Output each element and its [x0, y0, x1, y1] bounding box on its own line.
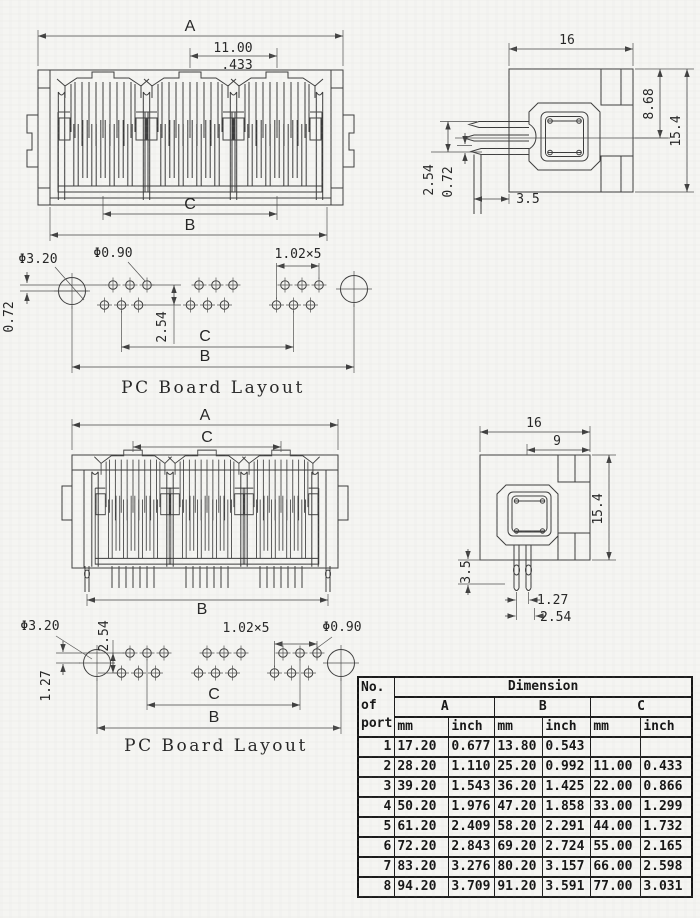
table-row: 6 72.20 2.843 69.20 2.724 55.00 2.165 [358, 837, 692, 857]
dim-label-154-2: 15.4 [591, 493, 606, 524]
cell-c-mm: 77.00 [591, 877, 641, 897]
port-count: 3 [358, 777, 395, 797]
dim-label-127-s2: 1.27 [537, 593, 568, 608]
table-row: 1 17.20 0.677 13.80 0.543 [358, 737, 692, 757]
dim-label-254-pcb1: 2.54 [155, 311, 170, 342]
dim-label-254-s1: 2.54 [422, 164, 437, 195]
cell-c-mm: 22.00 [591, 777, 641, 797]
dim-label-072-pcb1: 0.72 [2, 301, 17, 332]
dim-label-a1: A [185, 18, 196, 35]
dim-label-c2: C [201, 429, 213, 446]
cell-c-inch: 2.165 [641, 837, 692, 857]
cell-c-inch [641, 737, 692, 757]
table-row: 3 39.20 1.543 36.20 1.425 22.00 0.866 [358, 777, 692, 797]
no-line-2: of [361, 697, 392, 715]
dim-label-433in: .433 [221, 58, 252, 73]
cell-c-inch: 0.433 [641, 757, 692, 777]
dimension-table: No. of port Dimension A B C mm inch mm i… [357, 676, 693, 898]
table-header-col-a: A [395, 697, 495, 717]
cell-c-mm: 33.00 [591, 797, 641, 817]
dim-label-c1: C [184, 196, 196, 213]
cell-b-inch: 1.425 [543, 777, 591, 797]
cell-a-mm: 94.20 [395, 877, 449, 897]
cell-a-mm: 83.20 [395, 857, 449, 877]
dim-label-c-pcb1: C [199, 328, 211, 345]
cell-b-inch: 0.543 [543, 737, 591, 757]
cell-b-mm: 13.80 [495, 737, 543, 757]
cell-c-inch: 1.299 [641, 797, 692, 817]
cell-c-inch: 3.031 [641, 877, 692, 897]
table-row: 7 83.20 3.276 80.20 3.157 66.00 2.598 [358, 857, 692, 877]
unit-a-mm: mm [395, 717, 449, 737]
table-header-dimension: Dimension [395, 677, 692, 697]
dim-label-phi090-1: Φ0.90 [93, 246, 132, 261]
dim-label-254-s2: 2.54 [540, 610, 571, 625]
dim-label-35-1: 3.5 [516, 192, 539, 207]
cell-c-mm: 44.00 [591, 817, 641, 837]
cell-c-inch: 2.598 [641, 857, 692, 877]
cell-a-mm: 17.20 [395, 737, 449, 757]
side-view-1: 16 8.68 15.4 2.54 0.72 3.5 [422, 33, 694, 214]
pcb-layout-2-caption: PC Board Layout [124, 736, 308, 756]
dim-label-b1: B [185, 217, 196, 234]
port-count: 5 [358, 817, 395, 837]
cell-a-mm: 50.20 [395, 797, 449, 817]
no-line-3: port [361, 715, 392, 733]
dim-label-35-2: 3.5 [459, 560, 474, 583]
cell-b-inch: 0.992 [543, 757, 591, 777]
port-count: 1 [358, 737, 395, 757]
port-count: 2 [358, 757, 395, 777]
cell-b-inch: 2.291 [543, 817, 591, 837]
dim-label-b-pcb2: B [209, 709, 220, 726]
dim-label-phi320-1: Φ3.20 [18, 252, 57, 267]
dim-label-b2: B [197, 601, 208, 618]
pcb-layout-1-caption: PC Board Layout [121, 378, 305, 398]
cell-b-inch: 1.858 [543, 797, 591, 817]
dim-label-16-2: 16 [526, 416, 542, 431]
cell-a-inch: 1.976 [449, 797, 495, 817]
dim-label-154-1: 15.4 [669, 115, 684, 146]
cell-a-inch: 3.709 [449, 877, 495, 897]
cell-a-inch: 0.677 [449, 737, 495, 757]
table-row: 8 94.20 3.709 91.20 3.591 77.00 3.031 [358, 877, 692, 897]
unit-b-inch: inch [543, 717, 591, 737]
unit-c-inch: inch [641, 717, 692, 737]
cell-c-mm: 66.00 [591, 857, 641, 877]
dim-label-a2: A [200, 407, 211, 424]
dim-label-072-s1: 0.72 [441, 166, 456, 197]
table-header-col-b: B [495, 697, 591, 717]
cell-b-mm: 47.20 [495, 797, 543, 817]
cell-a-mm: 72.20 [395, 837, 449, 857]
cell-c-inch: 0.866 [641, 777, 692, 797]
table-row: 4 50.20 1.976 47.20 1.858 33.00 1.299 [358, 797, 692, 817]
table-header-no-of-port: No. of port [358, 677, 395, 737]
dim-label-16-1: 16 [559, 33, 575, 48]
cell-b-mm: 69.20 [495, 837, 543, 857]
table-row: 5 61.20 2.409 58.20 2.291 44.00 1.732 [358, 817, 692, 837]
port-count: 7 [358, 857, 395, 877]
cell-a-mm: 39.20 [395, 777, 449, 797]
cell-a-mm: 28.20 [395, 757, 449, 777]
cell-c-mm: 11.00 [591, 757, 641, 777]
dim-label-c-pcb2: C [208, 686, 220, 703]
side-view-2: 16 9 15.4 3.5 1.27 2.54 [458, 416, 616, 625]
dim-label-b-pcb1: B [200, 348, 211, 365]
port-count: 8 [358, 877, 395, 897]
dim-label-9: 9 [553, 434, 561, 449]
dim-label-254-pcb2: 2.54 [97, 620, 112, 651]
cell-a-inch: 1.543 [449, 777, 495, 797]
engineering-drawing-page: A 11.00 .433 C B 16 8.68 15.4 2.54 0.72 … [0, 0, 700, 918]
cell-a-mm: 61.20 [395, 817, 449, 837]
dim-label-868: 8.68 [642, 88, 657, 119]
dim-label-127-pcb2: 1.27 [39, 670, 54, 701]
front-view-1: A 11.00 .433 C B [27, 18, 354, 241]
dim-label-phi320-2: Φ3.20 [20, 619, 59, 634]
cell-c-mm: 55.00 [591, 837, 641, 857]
port-count: 4 [358, 797, 395, 817]
front-view-2: A C B [62, 407, 348, 618]
cell-c-mm [591, 737, 641, 757]
dim-label-11mm: 11.00 [213, 41, 252, 56]
table-header-col-c: C [591, 697, 692, 717]
dim-label-pitch-1: 1.02×5 [275, 247, 322, 262]
dim-label-pitch-2: 1.02×5 [223, 621, 270, 636]
port-count: 6 [358, 837, 395, 857]
cell-b-inch: 2.724 [543, 837, 591, 857]
unit-c-mm: mm [591, 717, 641, 737]
cell-b-inch: 3.157 [543, 857, 591, 877]
no-line-1: No. [361, 679, 392, 697]
cell-a-inch: 2.409 [449, 817, 495, 837]
pcb-layout-1: Φ3.20 Φ0.90 1.02×5 0.72 2.54 C B PC Boar… [2, 246, 372, 398]
cell-b-mm: 36.20 [495, 777, 543, 797]
cell-a-inch: 2.843 [449, 837, 495, 857]
table-row: 2 28.20 1.110 25.20 0.992 11.00 0.433 [358, 757, 692, 777]
cell-c-inch: 1.732 [641, 817, 692, 837]
cell-a-inch: 1.110 [449, 757, 495, 777]
cell-b-inch: 3.591 [543, 877, 591, 897]
dim-label-phi090-2: Φ0.90 [322, 620, 361, 635]
cell-b-mm: 80.20 [495, 857, 543, 877]
unit-a-inch: inch [449, 717, 495, 737]
pcb-layout-2: Φ3.20 2.54 1.02×5 Φ0.90 1.27 C B PC Boar… [20, 619, 361, 756]
cell-b-mm: 91.20 [495, 877, 543, 897]
cell-b-mm: 58.20 [495, 817, 543, 837]
cell-a-inch: 3.276 [449, 857, 495, 877]
unit-b-mm: mm [495, 717, 543, 737]
cell-b-mm: 25.20 [495, 757, 543, 777]
